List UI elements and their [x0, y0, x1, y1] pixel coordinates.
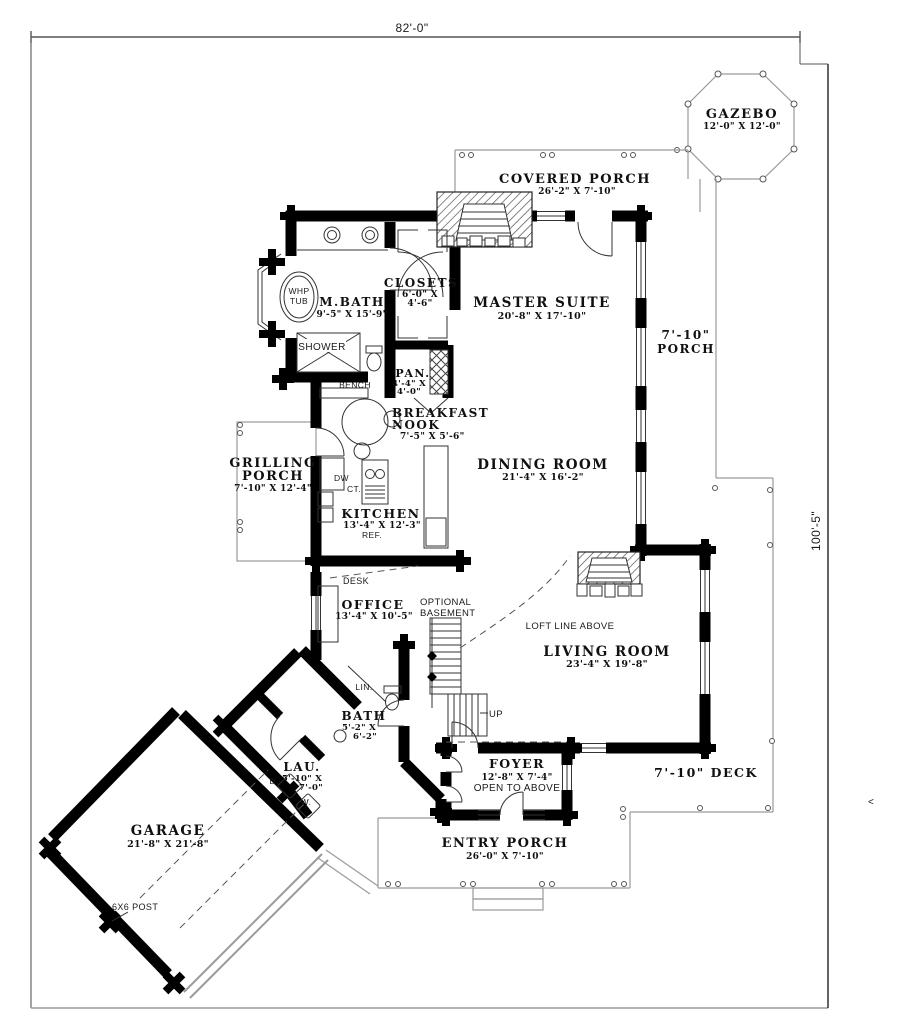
office-label: OFFICE: [342, 597, 405, 612]
kitchen-label: KITCHEN: [341, 506, 420, 521]
cooktop-label: CT.: [347, 484, 361, 494]
covered-porch-label: COVERED PORCH: [499, 172, 651, 187]
closets-dims-2: 4'-6": [407, 299, 432, 309]
grilling-porch-dims: 7'-10" X 12'-4": [234, 484, 312, 494]
foyer-label: FOYER: [489, 756, 545, 771]
dryer-label: D.: [269, 776, 278, 786]
nook-dims: 7'-5" X 5'-6": [400, 432, 465, 442]
side-arrow-glyph: <: [868, 797, 874, 808]
foyer-dims: 12'-8" X 7'-4": [481, 773, 552, 783]
dim-top-label: 82'-0": [396, 21, 429, 35]
entry-porch-dims: 26'-0" X 7'-10": [466, 852, 544, 862]
dining-dims: 21'-4" X 16'-2": [502, 472, 584, 483]
grilling-porch-label-2: PORCH: [242, 469, 304, 484]
washer-label: W.: [301, 797, 312, 807]
whirlpool-label-2: TUB: [290, 296, 308, 306]
master-suite-dims: 20'-8" X 17'-10": [498, 311, 587, 322]
garage-dims: 21'-8" X 21'-8": [127, 839, 209, 850]
nook-label-2: NOOK: [392, 418, 440, 432]
optional-basement-label-1: OPTIONAL: [420, 597, 471, 608]
living-dims: 23'-4" X 19'-8": [566, 659, 648, 670]
covered-porch-dims: 26'-2" X 7'-10": [538, 187, 616, 197]
gazebo-dims: 12'-0" X 12'-0": [703, 122, 781, 132]
optional-basement-label-2: BASEMENT: [420, 608, 475, 619]
gazebo-label: GAZEBO: [706, 107, 778, 122]
mbath-label: M.BATH: [319, 295, 385, 309]
floor-plan-page: 82'-0" 100'-5" < GAZEBO 12'-0" X 12'-0" …: [0, 0, 900, 1030]
bath-dims-2: 6'-2": [353, 732, 377, 742]
living-label: LIVING ROOM: [543, 644, 670, 660]
refrigerator-label: REF.: [362, 530, 382, 540]
dimension-lines: [31, 31, 828, 1008]
shower-label: SHOWER: [298, 342, 345, 353]
closets-label: CLOSETS: [384, 276, 458, 290]
foyer-open-label: OPEN TO ABOVE: [474, 783, 561, 794]
office-dims: 13'-4" X 10'-5": [335, 612, 413, 622]
master-fireplace: [437, 192, 532, 247]
floor-plan-svg: 82'-0" 100'-5" < GAZEBO 12'-0" X 12'-0" …: [0, 0, 900, 1030]
laundry-dims-2: 7'-0": [299, 783, 323, 793]
labels: 82'-0" 100'-5" < GAZEBO 12'-0" X 12'-0" …: [112, 21, 874, 912]
entry-porch-label: ENTRY PORCH: [442, 836, 569, 851]
laundry-label: LAU.: [283, 760, 320, 774]
living-fireplace: [577, 552, 642, 597]
desk-label: DESK: [343, 576, 369, 586]
side-porch-label-2: PORCH: [657, 342, 715, 356]
loft-line-label: LOFT LINE ABOVE: [526, 621, 615, 632]
mbath-dims: 9'-5" X 15'-9": [316, 310, 387, 320]
garage-label: GARAGE: [131, 823, 206, 839]
pantry-dims-2: 4'-0": [397, 387, 421, 397]
dishwasher-label: DW: [334, 473, 349, 483]
deck-label: 7'-10" DECK: [654, 765, 758, 780]
bench-label: BENCH: [339, 380, 371, 390]
post-label: 6X6 POST: [112, 902, 158, 912]
dining-label: DINING ROOM: [477, 457, 608, 473]
dim-right-label: 100'-5": [809, 511, 823, 551]
bath-label: BATH: [341, 709, 386, 723]
whirlpool-label-1: WHP: [288, 286, 309, 296]
stairs-up-label: UP: [489, 709, 503, 720]
linen-label: LIN.: [355, 682, 372, 692]
side-porch-label-1: 7'-10": [662, 328, 711, 342]
master-suite-label: MASTER SUITE: [473, 295, 611, 311]
